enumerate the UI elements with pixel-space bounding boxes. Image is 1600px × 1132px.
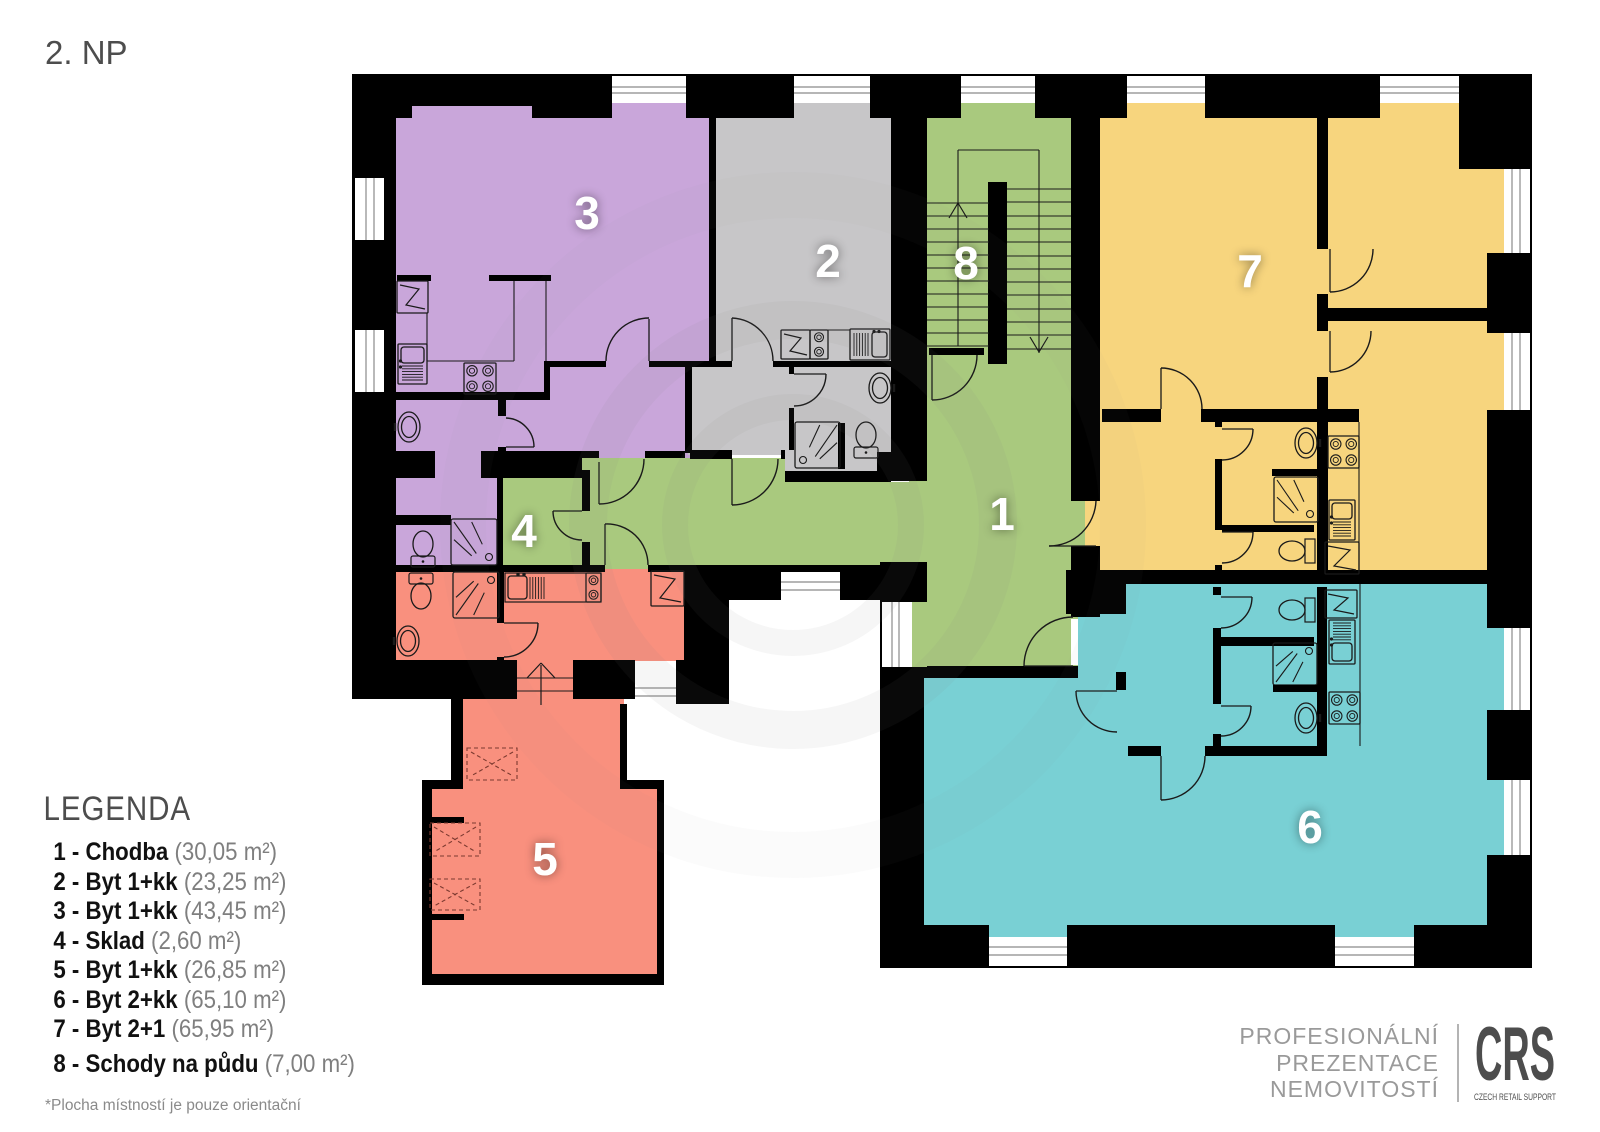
svg-text:5 - Byt 1+kk (26,85 m²): 5 - Byt 1+kk (26,85 m²) bbox=[53, 957, 286, 984]
svg-text:6: 6 bbox=[1297, 801, 1323, 853]
svg-text:1: 1 bbox=[989, 488, 1015, 540]
svg-text:PROFESIONÁLNÍ: PROFESIONÁLNÍ bbox=[1239, 1023, 1439, 1049]
svg-text:4 - Sklad (2,60 m²): 4 - Sklad (2,60 m²) bbox=[53, 928, 241, 955]
svg-text:NEMOVITOSTÍ: NEMOVITOSTÍ bbox=[1270, 1076, 1439, 1102]
svg-text:6 - Byt 2+kk (65,10 m²): 6 - Byt 2+kk (65,10 m²) bbox=[53, 987, 286, 1014]
svg-text:3 - Byt 1+kk (43,45 m²): 3 - Byt 1+kk (43,45 m²) bbox=[53, 898, 286, 925]
svg-text:PREZENTACE: PREZENTACE bbox=[1276, 1050, 1439, 1076]
svg-text:CZECH RETAIL SUPPORT: CZECH RETAIL SUPPORT bbox=[1474, 1092, 1556, 1103]
svg-text:3: 3 bbox=[574, 187, 600, 239]
svg-text:4: 4 bbox=[511, 505, 537, 557]
svg-text:LEGENDA: LEGENDA bbox=[44, 789, 191, 827]
svg-text:CRS: CRS bbox=[1475, 1012, 1555, 1097]
svg-text:2 - Byt 1+kk (23,25 m²): 2 - Byt 1+kk (23,25 m²) bbox=[53, 869, 286, 896]
svg-text:*Plocha místností je pouze ori: *Plocha místností je pouze orientační bbox=[45, 1097, 302, 1114]
svg-text:8 - Schody na půdu (7,00 m²): 8 - Schody na půdu (7,00 m²) bbox=[53, 1051, 355, 1078]
svg-text:7: 7 bbox=[1237, 245, 1263, 297]
svg-text:8: 8 bbox=[953, 237, 979, 289]
svg-text:7 - Byt 2+1 (65,95 m²): 7 - Byt 2+1 (65,95 m²) bbox=[53, 1016, 274, 1043]
svg-text:2: 2 bbox=[815, 235, 841, 287]
svg-text:1 - Chodba (30,05 m²): 1 - Chodba (30,05 m²) bbox=[53, 839, 277, 866]
svg-text:2. NP: 2. NP bbox=[45, 34, 128, 71]
svg-text:5: 5 bbox=[532, 833, 558, 885]
